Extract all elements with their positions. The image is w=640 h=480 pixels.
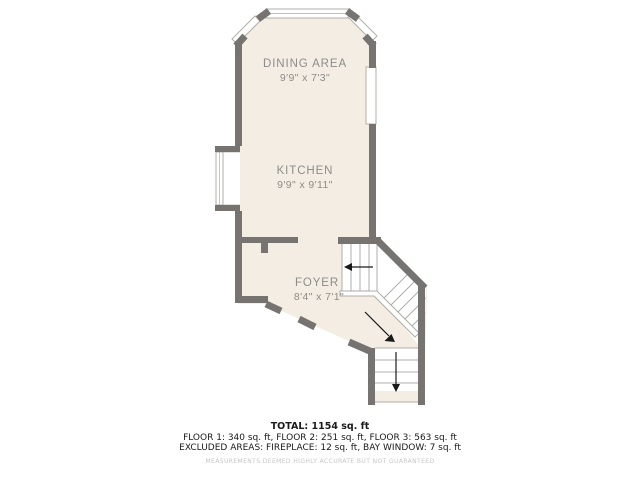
kitchen-dims: 9'9" x 9'11" [277, 179, 333, 191]
excluded-areas-text: EXCLUDED AREAS: FIREPLACE: 12 sq. ft, BA… [0, 443, 640, 453]
dining-area-label: DINING AREA [263, 58, 347, 70]
foyer-label: FOYER [295, 277, 339, 289]
total-area-text: TOTAL: 1154 sq. ft [0, 422, 640, 433]
kitchen-label: KITCHEN [277, 165, 334, 177]
window-right [366, 67, 376, 124]
entry-landing [375, 391, 418, 402]
disclaimer-text: MEASUREMENTS DEEMED HIGHLY ACCURATE BUT … [0, 458, 640, 465]
area-summary: TOTAL: 1154 sq. ft FLOOR 1: 340 sq. ft, … [0, 422, 640, 465]
foyer-dims: 8'4" x 7'1" [294, 291, 344, 303]
dining-area-dims: 9'9" x 7'3" [280, 72, 330, 84]
floor-plan-page: DINING AREA 9'9" x 7'3" KITCHEN 9'9" x 9… [0, 0, 640, 480]
floor-plan-drawing: DINING AREA 9'9" x 7'3" KITCHEN 9'9" x 9… [0, 0, 640, 480]
floor-footprint [238, 12, 427, 403]
floor-areas-text: FLOOR 1: 340 sq. ft, FLOOR 2: 251 sq. ft… [0, 433, 640, 443]
box-window-left [215, 150, 240, 207]
